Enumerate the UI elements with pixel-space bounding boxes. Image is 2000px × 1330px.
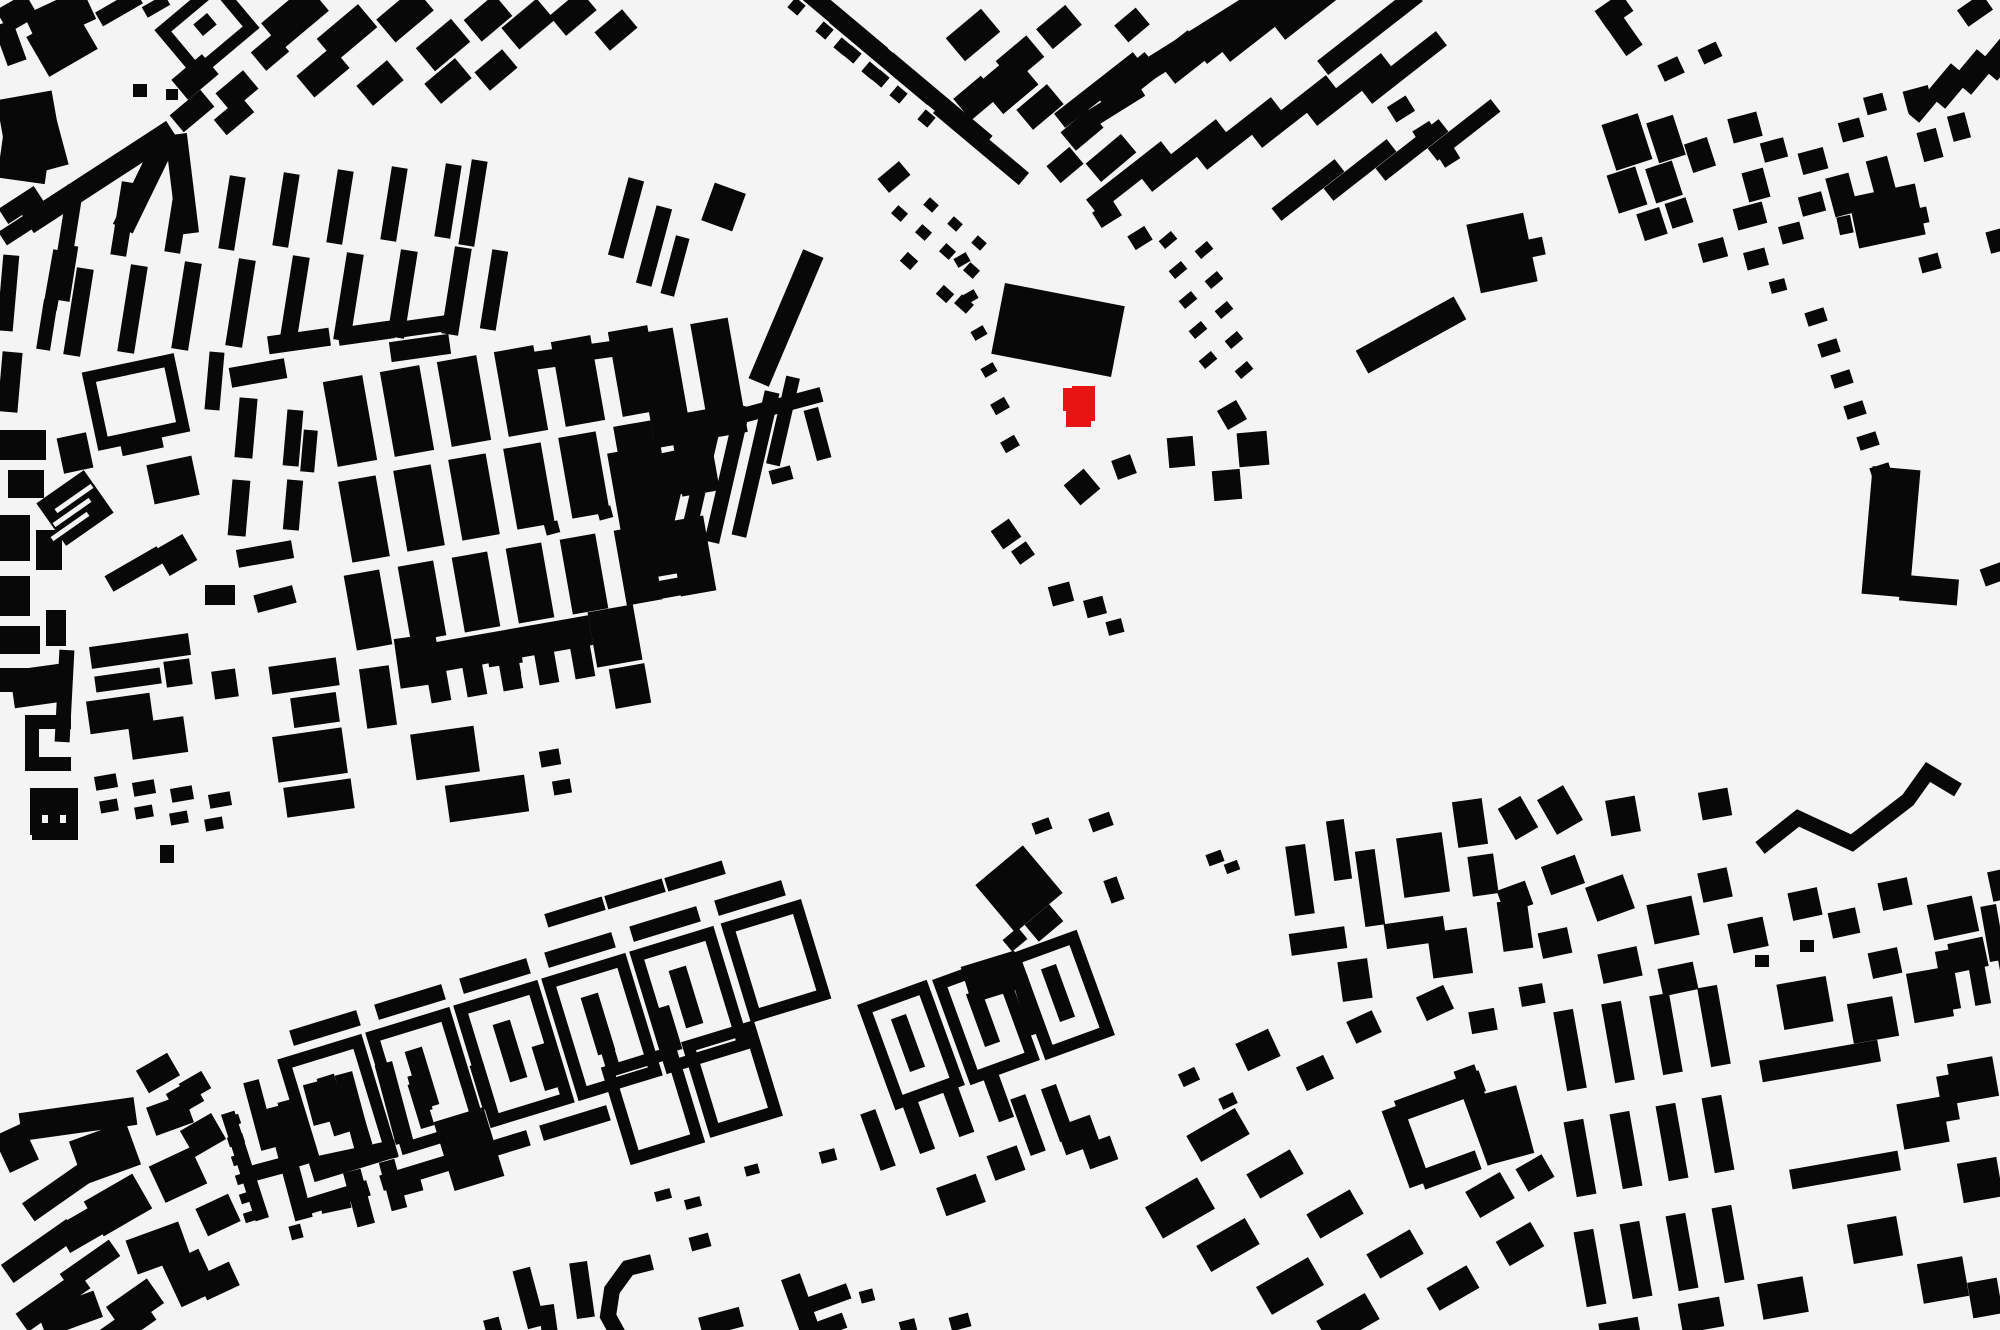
figure-ground-map	[0, 0, 2000, 1330]
map-canvas	[0, 0, 2000, 1330]
highlighted-building	[1063, 386, 1095, 427]
